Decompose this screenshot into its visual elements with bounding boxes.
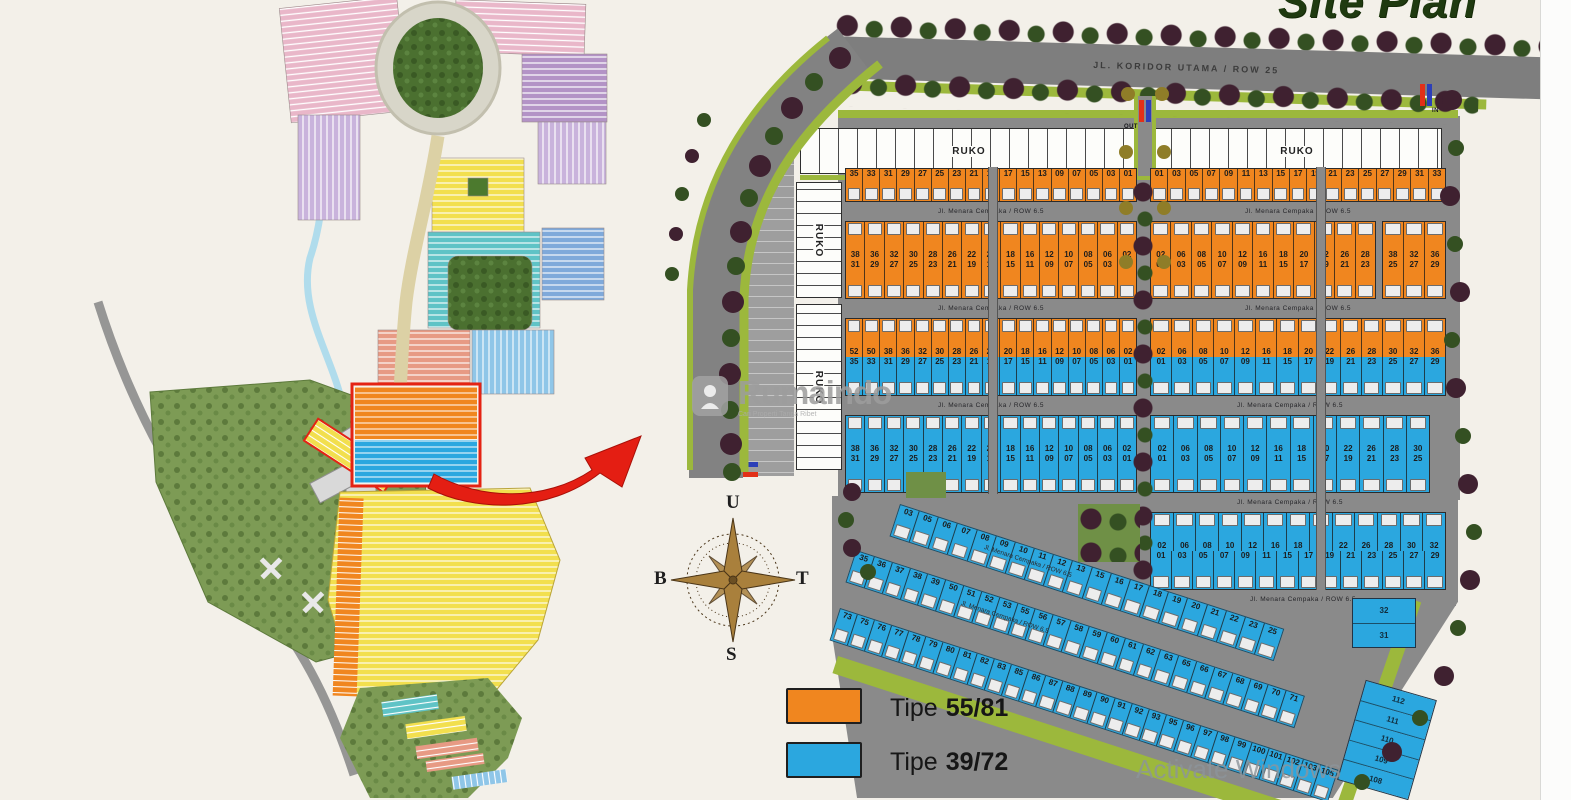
lot-number: 18: [1277, 348, 1297, 356]
house-icon: [1205, 188, 1218, 200]
lot-number: 07: [1059, 261, 1077, 269]
lot-number: 06: [936, 519, 957, 533]
house-icon: [1301, 320, 1316, 332]
house-icon: [1064, 640, 1081, 656]
lot-number: 26: [1335, 251, 1354, 259]
house-icon: [1343, 320, 1358, 332]
compass-north-label: U: [726, 492, 740, 514]
lot-number: 15: [1001, 261, 1019, 269]
lot-number: 17: [1000, 170, 1016, 178]
lot-number: 32: [885, 445, 903, 453]
lot-number: 18: [1287, 542, 1309, 550]
house-icon: [1276, 285, 1291, 297]
lot-08: 08: [1079, 416, 1098, 454]
lot-03: 03: [1172, 551, 1193, 589]
lot-38: 38: [1383, 222, 1404, 260]
lot-08: 08: [1198, 416, 1221, 454]
house-icon: [1066, 580, 1084, 596]
lot-25: 25: [904, 260, 923, 298]
lot-01: 01: [1151, 357, 1172, 395]
house-icon: [1301, 382, 1316, 394]
lot-number: 87: [1044, 677, 1063, 690]
lot-29: 29: [865, 454, 884, 492]
lot-12: 12: [1242, 513, 1265, 551]
lot-15: 15: [1274, 260, 1294, 298]
house-icon: [1247, 479, 1264, 491]
house-icon: [1413, 188, 1426, 200]
lot-number: 57: [1051, 616, 1070, 629]
lot-11: 11: [1021, 454, 1040, 492]
lot-number: 03: [1171, 261, 1190, 269]
lot-16: 16: [1256, 319, 1277, 357]
house-icon: [868, 417, 882, 429]
lot-09: 09: [1244, 454, 1267, 492]
activate-windows-overlay: Activate Windows: [1136, 754, 1341, 785]
lot-36: 36: [1425, 222, 1445, 260]
lot-06: 06: [1098, 222, 1117, 260]
house-icon: [1019, 188, 1032, 200]
lot-number: 03: [1168, 170, 1184, 178]
house-icon: [1337, 223, 1352, 235]
house-icon: [1222, 188, 1235, 200]
legend-label: Tipe55/81: [890, 694, 1008, 723]
lot-11: 11: [1253, 260, 1273, 298]
lot-number: 96: [1181, 722, 1200, 735]
lot-number: 33: [863, 170, 879, 178]
house-icon: [899, 320, 912, 332]
house-icon: [893, 524, 911, 540]
house-icon: [1343, 382, 1358, 394]
house-icon: [848, 285, 862, 297]
lot-25: 25: [1383, 551, 1404, 589]
house-icon: [848, 188, 861, 200]
house-icon: [1062, 417, 1076, 429]
gate3-out-arrow: [742, 472, 758, 477]
lot-number: 10: [1214, 348, 1234, 356]
house-icon: [1118, 657, 1135, 673]
house-icon: [1153, 382, 1168, 394]
lot-number: 15: [1277, 552, 1297, 560]
housing-block-R2b: 383236252729: [1382, 221, 1446, 299]
lot-15: 15: [1001, 260, 1020, 298]
lot-number: 01: [1151, 170, 1167, 178]
house-icon: [1340, 479, 1357, 491]
lot-number: 25: [932, 170, 948, 178]
pocket-park: [906, 472, 946, 498]
lot-number: 01: [1120, 170, 1136, 178]
compass-east-label: T: [796, 568, 809, 590]
house-icon: [1280, 320, 1295, 332]
house-icon: [950, 188, 963, 200]
house-icon: [1215, 285, 1230, 297]
lot-16: 16: [1021, 416, 1040, 454]
house-icon: [1280, 382, 1295, 394]
lot-19: 19: [1337, 454, 1360, 492]
legend-type-prefix: Tipe: [890, 694, 938, 722]
house-icon: [1136, 663, 1153, 679]
lot-number: 13: [1255, 170, 1271, 178]
housing-block-R4: 0206081012161820222628300103050709111517…: [1150, 415, 1430, 493]
lot-22: 22: [1333, 513, 1356, 551]
lot-number: 21: [1205, 606, 1226, 620]
lot-number: 12: [1242, 542, 1264, 550]
lot-number: 08: [1196, 542, 1218, 550]
house-icon: [1196, 320, 1211, 332]
lot-30: 30: [904, 222, 923, 260]
house-icon: [1358, 223, 1373, 235]
lot-number: 21: [1341, 358, 1361, 366]
lot-number: 30: [1383, 348, 1403, 356]
lot-number: 38: [846, 445, 864, 453]
lot-11: 11: [1034, 357, 1051, 395]
house-icon: [1386, 479, 1403, 491]
lot-number: 03: [1172, 552, 1192, 560]
house-icon: [1100, 285, 1114, 297]
lot-21: 21: [1325, 169, 1342, 201]
lot-number: 35: [846, 358, 862, 366]
lot-number: 08: [1079, 251, 1097, 259]
lot-number: 05: [1079, 261, 1097, 269]
lot-number: 21: [1335, 261, 1354, 269]
house-icon: [1243, 698, 1260, 714]
house-icon: [1085, 586, 1103, 602]
lot-number: 13: [1034, 170, 1050, 178]
lot-number: 23: [949, 170, 965, 178]
legend-swatch-tipe-55-81: [786, 688, 862, 724]
lot-number: 05: [1193, 552, 1213, 560]
street: Jl. Menara Cempaka / ROW 6.5: [1150, 301, 1446, 316]
lot-number: 07: [1221, 455, 1243, 463]
lot-03: 03: [1103, 357, 1120, 395]
lot-number: 28: [1384, 445, 1406, 453]
house-icon: [1378, 188, 1391, 200]
lot-18: 18: [1001, 416, 1020, 454]
lot-number: 21: [1341, 552, 1361, 560]
lot-15: 15: [1001, 454, 1020, 492]
lot-07: 07: [1212, 260, 1232, 298]
lot-21: 21: [966, 169, 983, 201]
lot-36: 36: [865, 416, 884, 454]
lot-number: 63: [1159, 651, 1178, 664]
lot-number: 03: [1174, 455, 1196, 463]
lot-number: 85: [1009, 666, 1028, 679]
lot-number: 27: [885, 455, 903, 463]
lot-number: 97: [1198, 727, 1217, 740]
lot-09: 09: [1235, 551, 1256, 589]
lot-number: 29: [897, 358, 913, 366]
lot-number: 25: [904, 455, 922, 463]
house-icon: [1259, 382, 1274, 394]
lot-number: 11: [1238, 170, 1254, 178]
lot-number: 05: [1192, 261, 1211, 269]
lot-number: 10: [1069, 348, 1085, 356]
lot-25: 25: [1383, 357, 1404, 395]
lot-number: 52: [846, 348, 862, 356]
house-icon: [1090, 711, 1106, 727]
lot-05: 05: [1198, 454, 1221, 492]
house-icon: [1238, 382, 1253, 394]
lot-16: 16: [1264, 513, 1287, 551]
house-icon: [1279, 710, 1296, 726]
lot-number: 35: [854, 552, 873, 565]
lot-number: 25: [1383, 358, 1403, 366]
lot-number: 20: [1185, 600, 1206, 614]
lot-number: 03: [898, 506, 919, 520]
house-icon: [1082, 646, 1099, 662]
house-icon: [1154, 669, 1171, 685]
house-icon: [965, 479, 979, 491]
house-row: 0206081012161820222628303236: [1151, 319, 1445, 357]
lot-number: 07: [1212, 261, 1231, 269]
lot-number: 30: [904, 445, 922, 453]
house-icon: [1427, 223, 1442, 235]
lot-17: 17: [1000, 357, 1017, 395]
house-icon: [1270, 417, 1287, 429]
house-icon: [1176, 739, 1192, 755]
house-icon: [1062, 285, 1076, 297]
lot-11: 11: [1238, 169, 1255, 201]
house-icon: [968, 320, 981, 332]
house-icon: [1200, 624, 1218, 640]
lot-number: 11: [1267, 455, 1289, 463]
lot-number: 19: [1166, 593, 1187, 607]
house-icon: [1003, 285, 1017, 297]
house-icon: [1385, 576, 1400, 588]
lot-11: 11: [1021, 260, 1040, 298]
house-icon: [868, 479, 882, 491]
lot-27: 27: [1377, 169, 1394, 201]
lot-number: 39: [926, 576, 945, 589]
house-icon: [1003, 417, 1017, 429]
lot-26: 26: [1360, 416, 1383, 454]
lot-18: 18: [1001, 222, 1020, 260]
lot-number: 22: [962, 251, 980, 259]
house-icon: [1200, 417, 1217, 429]
lot-number: 15: [1001, 455, 1019, 463]
lot-number: 26: [1360, 445, 1382, 453]
lot-number: 36: [1425, 251, 1445, 259]
house-icon: [1036, 382, 1049, 394]
lot-number: 25: [1383, 261, 1403, 269]
lot-number: 07: [1214, 552, 1234, 560]
lot-number: 25: [1359, 170, 1375, 178]
lot-number: 26: [966, 348, 982, 356]
lot-number: 27: [885, 261, 903, 269]
house-icon: [868, 223, 882, 235]
lot-26: 26: [943, 416, 962, 454]
lot-number: 28: [924, 251, 942, 259]
house-row: 252729: [1383, 260, 1445, 298]
house-icon: [1174, 576, 1189, 588]
lot-28: 28: [924, 416, 943, 454]
lot-32: 32: [1423, 513, 1445, 551]
lot-number: 21: [966, 358, 982, 366]
lot-22: 22: [1337, 416, 1360, 454]
lot-05: 05: [1186, 169, 1203, 201]
lot-11: 11: [1256, 551, 1277, 589]
lot-01: 01: [1151, 551, 1172, 589]
lot-number: 51: [961, 587, 980, 600]
lot-32: 32: [1404, 319, 1425, 357]
lot-number: 23: [1362, 552, 1382, 560]
house-icon: [1174, 320, 1189, 332]
entrance-out-label: OUT: [1124, 124, 1138, 130]
watermark: Rumaindo Cari Properti Tanpa Ribet: [692, 376, 891, 418]
house-icon: [1238, 636, 1256, 652]
lot-number: 32: [915, 348, 931, 356]
lot-number: 73: [838, 610, 857, 623]
lot-number: 07: [1214, 358, 1234, 366]
house-icon: [1199, 514, 1215, 526]
lot-number: 02: [1151, 348, 1171, 356]
house-icon: [1194, 285, 1209, 297]
lot-number: 03: [1172, 358, 1192, 366]
lot-number: 31: [846, 261, 864, 269]
lot-15: 15: [1273, 169, 1290, 201]
house-icon: [933, 188, 946, 200]
lot-number: 22: [962, 445, 980, 453]
lot-number: 50: [943, 581, 962, 594]
lot-03: 03: [1172, 357, 1193, 395]
lot-number: 30: [904, 251, 922, 259]
lot-15: 15: [1017, 169, 1034, 201]
house-icon: [916, 320, 929, 332]
lot-number: 67: [1212, 669, 1231, 682]
house-icon: [916, 188, 929, 200]
lot-number: 26: [1341, 348, 1361, 356]
lot-16: 16: [1034, 319, 1051, 357]
lot-number: 58: [1069, 622, 1088, 635]
lot-06: 06: [1103, 319, 1120, 357]
house-icon: [1002, 188, 1015, 200]
house-icon: [1053, 320, 1066, 332]
house-icon: [1019, 382, 1032, 394]
lot-number: 81: [958, 649, 977, 662]
lot-26: 26: [943, 222, 962, 260]
lot-number: 20: [1294, 251, 1313, 259]
watermark-glyph: [699, 383, 721, 409]
lot-number: 07: [1203, 170, 1219, 178]
street-label: Jl. Menara Cempaka / ROW 6.5: [1237, 402, 1343, 409]
lot-25: 25: [1359, 169, 1376, 201]
house-icon: [1021, 689, 1037, 705]
lot-26: 26: [1335, 222, 1355, 260]
house-icon: [1070, 320, 1083, 332]
house-icon: [1081, 223, 1095, 235]
lot-number: 16: [1021, 251, 1039, 259]
house-icon: [1410, 417, 1427, 429]
house-icon: [1406, 576, 1421, 588]
house-icon: [1100, 479, 1114, 491]
lot-22: 22: [962, 222, 981, 260]
house-icon: [945, 285, 959, 297]
house-icon: [882, 320, 895, 332]
lot-27: 27: [1404, 357, 1425, 395]
lot-number: 07: [1069, 358, 1085, 366]
lot-number: 11: [1021, 261, 1039, 269]
lot-number: 50: [863, 348, 879, 356]
lot-number: 30: [1401, 542, 1423, 550]
lot-19: 19: [962, 454, 981, 492]
house-icon: [1153, 285, 1168, 297]
lot-number: 22: [1224, 612, 1245, 626]
house-icon: [950, 320, 963, 332]
lot-number: 62: [1141, 645, 1160, 658]
lot-22: 22: [962, 416, 981, 454]
lot-02: 02: [1151, 513, 1174, 551]
house-icon: [1039, 695, 1055, 711]
lot-11: 11: [1267, 454, 1290, 492]
lot-number: 38: [880, 348, 896, 356]
lot-number: 16: [1264, 542, 1286, 550]
house-icon: [1296, 223, 1311, 235]
lot-number: 11: [1256, 358, 1276, 366]
lot-number: 21: [1325, 170, 1341, 178]
gate3-in-arrow: [742, 462, 758, 467]
watermark-tagline: Cari Properti Tanpa Ribet: [738, 411, 891, 418]
house-icon: [1261, 704, 1278, 720]
page-title: Site Plan: [1278, 0, 1477, 28]
house-icon: [1200, 479, 1217, 491]
lot-number: 95: [1164, 716, 1183, 729]
lot-number: 03: [1103, 170, 1119, 178]
lot-stack-32-31: 3231: [1352, 598, 1416, 648]
lot-number: 28: [924, 445, 942, 453]
house-icon: [965, 223, 979, 235]
lot-09: 09: [1052, 357, 1069, 395]
lot-02: 02: [1151, 222, 1171, 260]
gate2-out-arrow: [1420, 84, 1425, 106]
house-icon: [1087, 382, 1100, 394]
lot-09: 09: [1235, 357, 1256, 395]
lot-number: 69: [1248, 680, 1267, 693]
house-icon: [901, 650, 917, 666]
house-icon: [1293, 479, 1310, 491]
lot-25: 25: [932, 357, 949, 395]
lot-32: 32: [1353, 599, 1415, 624]
entrance-in-arrow: [1146, 100, 1151, 122]
lot-21: 21: [1341, 357, 1362, 395]
house-icon: [1410, 479, 1427, 491]
house-icon: [1036, 188, 1049, 200]
street: Jl. Menara Cempaka / ROW 6.5: [1150, 495, 1430, 510]
lot-17: 17: [1000, 169, 1017, 201]
lot-21: 21: [943, 260, 962, 298]
house-icon: [1240, 188, 1253, 200]
lot-31: 31: [1411, 169, 1428, 201]
lot-number: 09: [1052, 358, 1068, 366]
house-icon: [970, 672, 986, 688]
lot-number: 15: [1017, 358, 1033, 366]
lot-number: 16: [1021, 445, 1039, 453]
lot-27: 27: [915, 357, 932, 395]
house-icon: [1431, 188, 1444, 200]
house-icon: [1238, 320, 1253, 332]
lot-07: 07: [1069, 357, 1086, 395]
legend-type-prefix: Tipe: [890, 748, 938, 776]
lot-number: 21: [943, 261, 961, 269]
legend-label: Tipe39/72: [890, 748, 1008, 777]
lot-08: 08: [1196, 513, 1219, 551]
lot-number: 08: [1193, 348, 1213, 356]
lot-05: 05: [1086, 169, 1103, 201]
house-icon: [1023, 479, 1037, 491]
house-row: 0206081012161820222628: [1151, 222, 1375, 260]
lot-27: 27: [885, 260, 904, 298]
lot-number: 08: [975, 531, 996, 545]
cross-lane: [1316, 167, 1326, 590]
street-label: Jl. Menara Cempaka / ROW 6.5: [1245, 305, 1351, 312]
